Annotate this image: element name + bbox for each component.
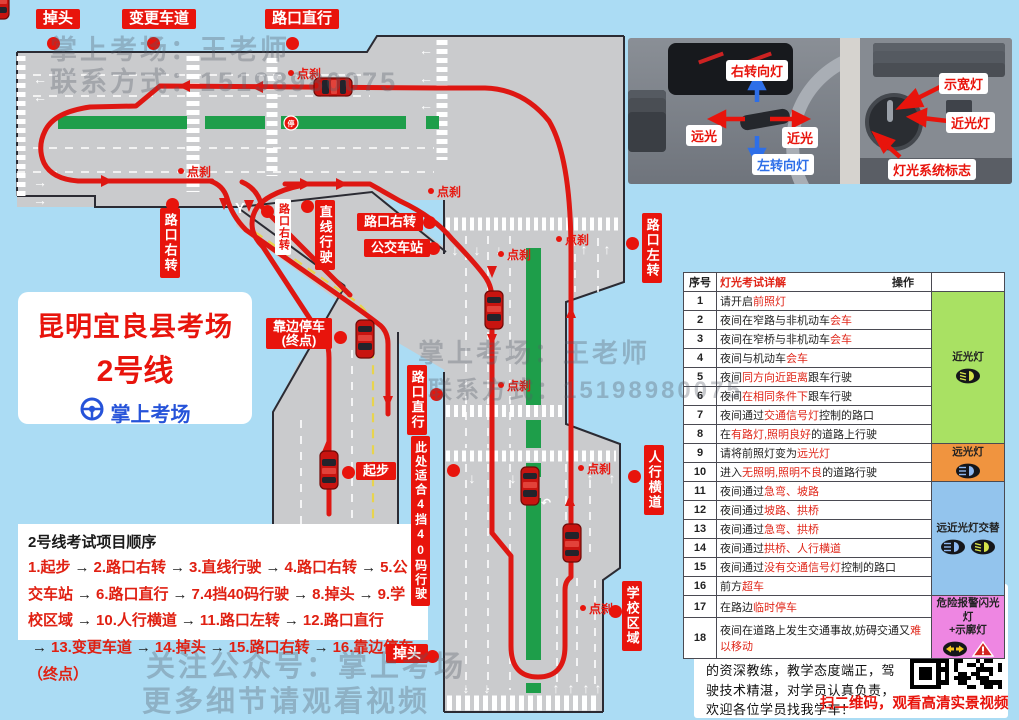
- row-text: 夜间与机动车会车: [717, 349, 932, 368]
- car-top-westbound: [314, 78, 352, 96]
- sequence-arrow-icon: →: [71, 559, 94, 576]
- qr-caption: 扫二维码，观看高清实景视频: [820, 692, 1009, 713]
- route-number: 2号线: [18, 346, 252, 390]
- row-text: 夜间在道路上发生交通事故,妨碍交通又难以移动: [717, 618, 932, 659]
- car-right-road-south: [485, 291, 503, 329]
- site-title: 昆明宜良县考场: [18, 305, 252, 344]
- row-number: 10: [684, 463, 717, 482]
- sequence-step: 8.掉头: [312, 586, 355, 603]
- sequence-arrow-icon: →: [280, 612, 303, 629]
- sequence-arrow-icon: →: [357, 559, 380, 576]
- row-text: 夜间通过拱桥、人行横道: [717, 539, 932, 558]
- row-number: 7: [684, 406, 717, 425]
- sequence-arrow-icon: →: [169, 586, 192, 603]
- row-text: 请将前照灯变为远光灯: [717, 444, 932, 463]
- header-detail: 灯光考试详解操作: [717, 273, 932, 292]
- sequence-arrow-icon: →: [206, 639, 229, 656]
- sequence-step: 13.变更车道: [51, 639, 132, 656]
- sequence-arrow-icon: →: [166, 559, 189, 576]
- row-text: 夜间通过没有交通信号灯控制的路口: [717, 558, 932, 577]
- instrument-cluster: [668, 43, 793, 95]
- row-text: 夜间通过急弯、拱桥: [717, 520, 932, 539]
- row-number: 17: [684, 596, 717, 618]
- row-text: 请开启前照灯: [717, 292, 932, 311]
- row-number: 13: [684, 520, 717, 539]
- row-number: 14: [684, 539, 717, 558]
- row-number: 9: [684, 444, 717, 463]
- brand-name: 掌上考场: [111, 398, 191, 427]
- qr-row: [910, 685, 1002, 689]
- sequence-step: 11.路口左转: [200, 612, 280, 629]
- a-pillar: [840, 38, 860, 184]
- sequence-step: 14.掉头: [155, 639, 206, 656]
- row-number: 15: [684, 558, 717, 577]
- steering-wheel-icon: [80, 397, 104, 427]
- row-text: 在路边临时停车: [717, 596, 932, 618]
- svg-text:←: ←: [33, 89, 47, 105]
- sequence-arrow-icon: →: [132, 639, 155, 656]
- table-row: 1请开启前照灯近光灯: [684, 292, 1005, 311]
- sequence-arrow-icon: →: [289, 586, 312, 603]
- fog-light-button: [946, 100, 972, 115]
- sequence-step: 4.路口右转: [285, 559, 358, 576]
- right-air-vent-icon: [873, 43, 1005, 77]
- title-card: 昆明宜良县考场 2号线 掌上考场: [18, 292, 252, 424]
- row-text: 夜间通过坡路、拱桥: [717, 501, 932, 520]
- sequence-step: 12.路口直行: [303, 612, 384, 629]
- row-number: 16: [684, 577, 717, 596]
- header-no: 序号: [684, 273, 717, 292]
- row-number: 1: [684, 292, 717, 311]
- header-icon-col: [932, 273, 1005, 292]
- sequence-step: 10.人行横道: [96, 612, 177, 629]
- sequence-arrow-icon: →: [28, 639, 51, 656]
- row-number: 2: [684, 311, 717, 330]
- row-number: 4: [684, 349, 717, 368]
- svg-text:停: 停: [288, 119, 295, 128]
- row-number: 11: [684, 482, 717, 501]
- row-text: 前方超车: [717, 577, 932, 596]
- table-row: 17在路边临时停车危险报警闪光灯 +示廓灯: [684, 596, 1005, 618]
- infographic-stage: ←← →→ ←←← ↓↓↓ ↑↑ ↓↓↓ ↑↑ ↶ ↓↓ ↑↑↑↑ Y 停: [0, 0, 1019, 720]
- sequence-items: 1.起步→2.路口右转→3.直线行驶→4.路口右转→5.公交车站→6.路口直行→…: [28, 555, 418, 688]
- row-text: 夜间在窄桥与非机动车会车: [717, 330, 932, 349]
- sequence-arrow-icon: →: [73, 612, 96, 629]
- svg-text:↓: ↓: [484, 680, 491, 696]
- row-text: 夜间通过交通信号灯控制的路口: [717, 406, 932, 425]
- light-exam-table: 序号灯光考试详解操作1请开启前照灯近光灯2夜间在窄路与非机动车会车3夜间在窄桥与…: [683, 272, 1005, 659]
- operation-group-cell: 远光灯: [932, 444, 1005, 482]
- svg-text:↑: ↑: [609, 470, 616, 486]
- operation-group-cell: 危险报警闪光灯 +示廓灯: [932, 596, 1005, 659]
- row-number: 3: [684, 330, 717, 349]
- svg-text:→: →: [33, 192, 47, 208]
- sequence-step: 2.路口右转: [94, 559, 167, 576]
- row-text: 夜间通过急弯、坡路: [717, 482, 932, 501]
- left-air-vent-icon: [628, 90, 666, 152]
- sequence-title: 2号线考试项目顺序: [28, 531, 418, 552]
- stop-sign-icon: 停: [284, 116, 298, 130]
- row-text: 夜间在窄路与非机动车会车: [717, 311, 932, 330]
- headlight-switch-knob: [865, 93, 923, 151]
- operation-group-cell: 近光灯: [932, 292, 1005, 444]
- svg-text:↑: ↑: [581, 241, 588, 257]
- row-number: 5: [684, 368, 717, 387]
- dashboard-photo: [628, 38, 1012, 184]
- lower-dash: [860, 158, 1012, 184]
- row-text: 进入无照明,照明不良的道路行驶: [717, 463, 932, 482]
- svg-text:→: →: [33, 174, 47, 190]
- svg-text:↑: ↑: [587, 470, 594, 486]
- brand-row: 掌上考场: [18, 397, 252, 427]
- row-number: 18: [684, 618, 717, 659]
- svg-text:↶: ↶: [541, 496, 551, 510]
- table-row: 9请将前照灯变为远光灯远光灯: [684, 444, 1005, 463]
- row-number: 12: [684, 501, 717, 520]
- switch-pointer: [887, 100, 893, 122]
- svg-text:←: ←: [33, 71, 47, 87]
- row-number: 6: [684, 387, 717, 406]
- svg-text:↑: ↑: [583, 680, 590, 696]
- svg-text:↓: ↓: [463, 680, 470, 696]
- sequence-step: 3.直线行驶: [189, 559, 262, 576]
- row-text: 夜间同方向近距离跟车行驶: [717, 368, 932, 387]
- turn-signal-stalk: [739, 108, 791, 131]
- table-header-row: 序号灯光考试详解操作: [684, 273, 1005, 292]
- row-text: 夜间在相同条件下跟车行驶: [717, 387, 932, 406]
- sequence-step: 6.路口直行: [96, 586, 169, 603]
- sequence-step: 1.起步: [28, 559, 71, 576]
- svg-text:↓: ↓: [510, 470, 517, 486]
- operation-group-cell: 远近光灯交替: [932, 482, 1005, 596]
- svg-text:↑: ↑: [604, 241, 611, 257]
- car-bottom-north: [563, 524, 581, 562]
- svg-text:←: ←: [419, 97, 433, 113]
- sequence-step: 7.4挡40码行驶: [192, 586, 290, 603]
- sequence-step: 15.路口右转: [229, 639, 310, 656]
- sequence-arrow-icon: →: [177, 612, 200, 629]
- svg-text:↑: ↑: [553, 680, 560, 696]
- row-text: 在有路灯,照明良好的道路上行驶: [717, 425, 932, 444]
- car-finish: [356, 320, 374, 358]
- car-start: [320, 451, 338, 489]
- svg-text:←: ←: [419, 42, 433, 58]
- table-row: 11夜间通过急弯、坡路远近光灯交替: [684, 482, 1005, 501]
- svg-text:↓: ↓: [496, 242, 503, 258]
- exam-sequence-box: 2号线考试项目顺序 1.起步→2.路口右转→3.直线行驶→4.路口右转→5.公交…: [18, 524, 428, 640]
- sequence-arrow-icon: →: [262, 559, 285, 576]
- row-number: 8: [684, 425, 717, 444]
- svg-text:↑: ↑: [595, 680, 602, 696]
- sequence-arrow-icon: →: [73, 586, 96, 603]
- svg-text:←: ←: [419, 70, 433, 86]
- car-mid-south: [521, 467, 539, 505]
- sequence-arrow-icon: →: [310, 639, 333, 656]
- svg-text:↓: ↓: [474, 242, 481, 258]
- svg-text:↑: ↑: [568, 680, 575, 696]
- svg-text:↓: ↓: [469, 470, 476, 486]
- sequence-arrow-icon: →: [355, 586, 378, 603]
